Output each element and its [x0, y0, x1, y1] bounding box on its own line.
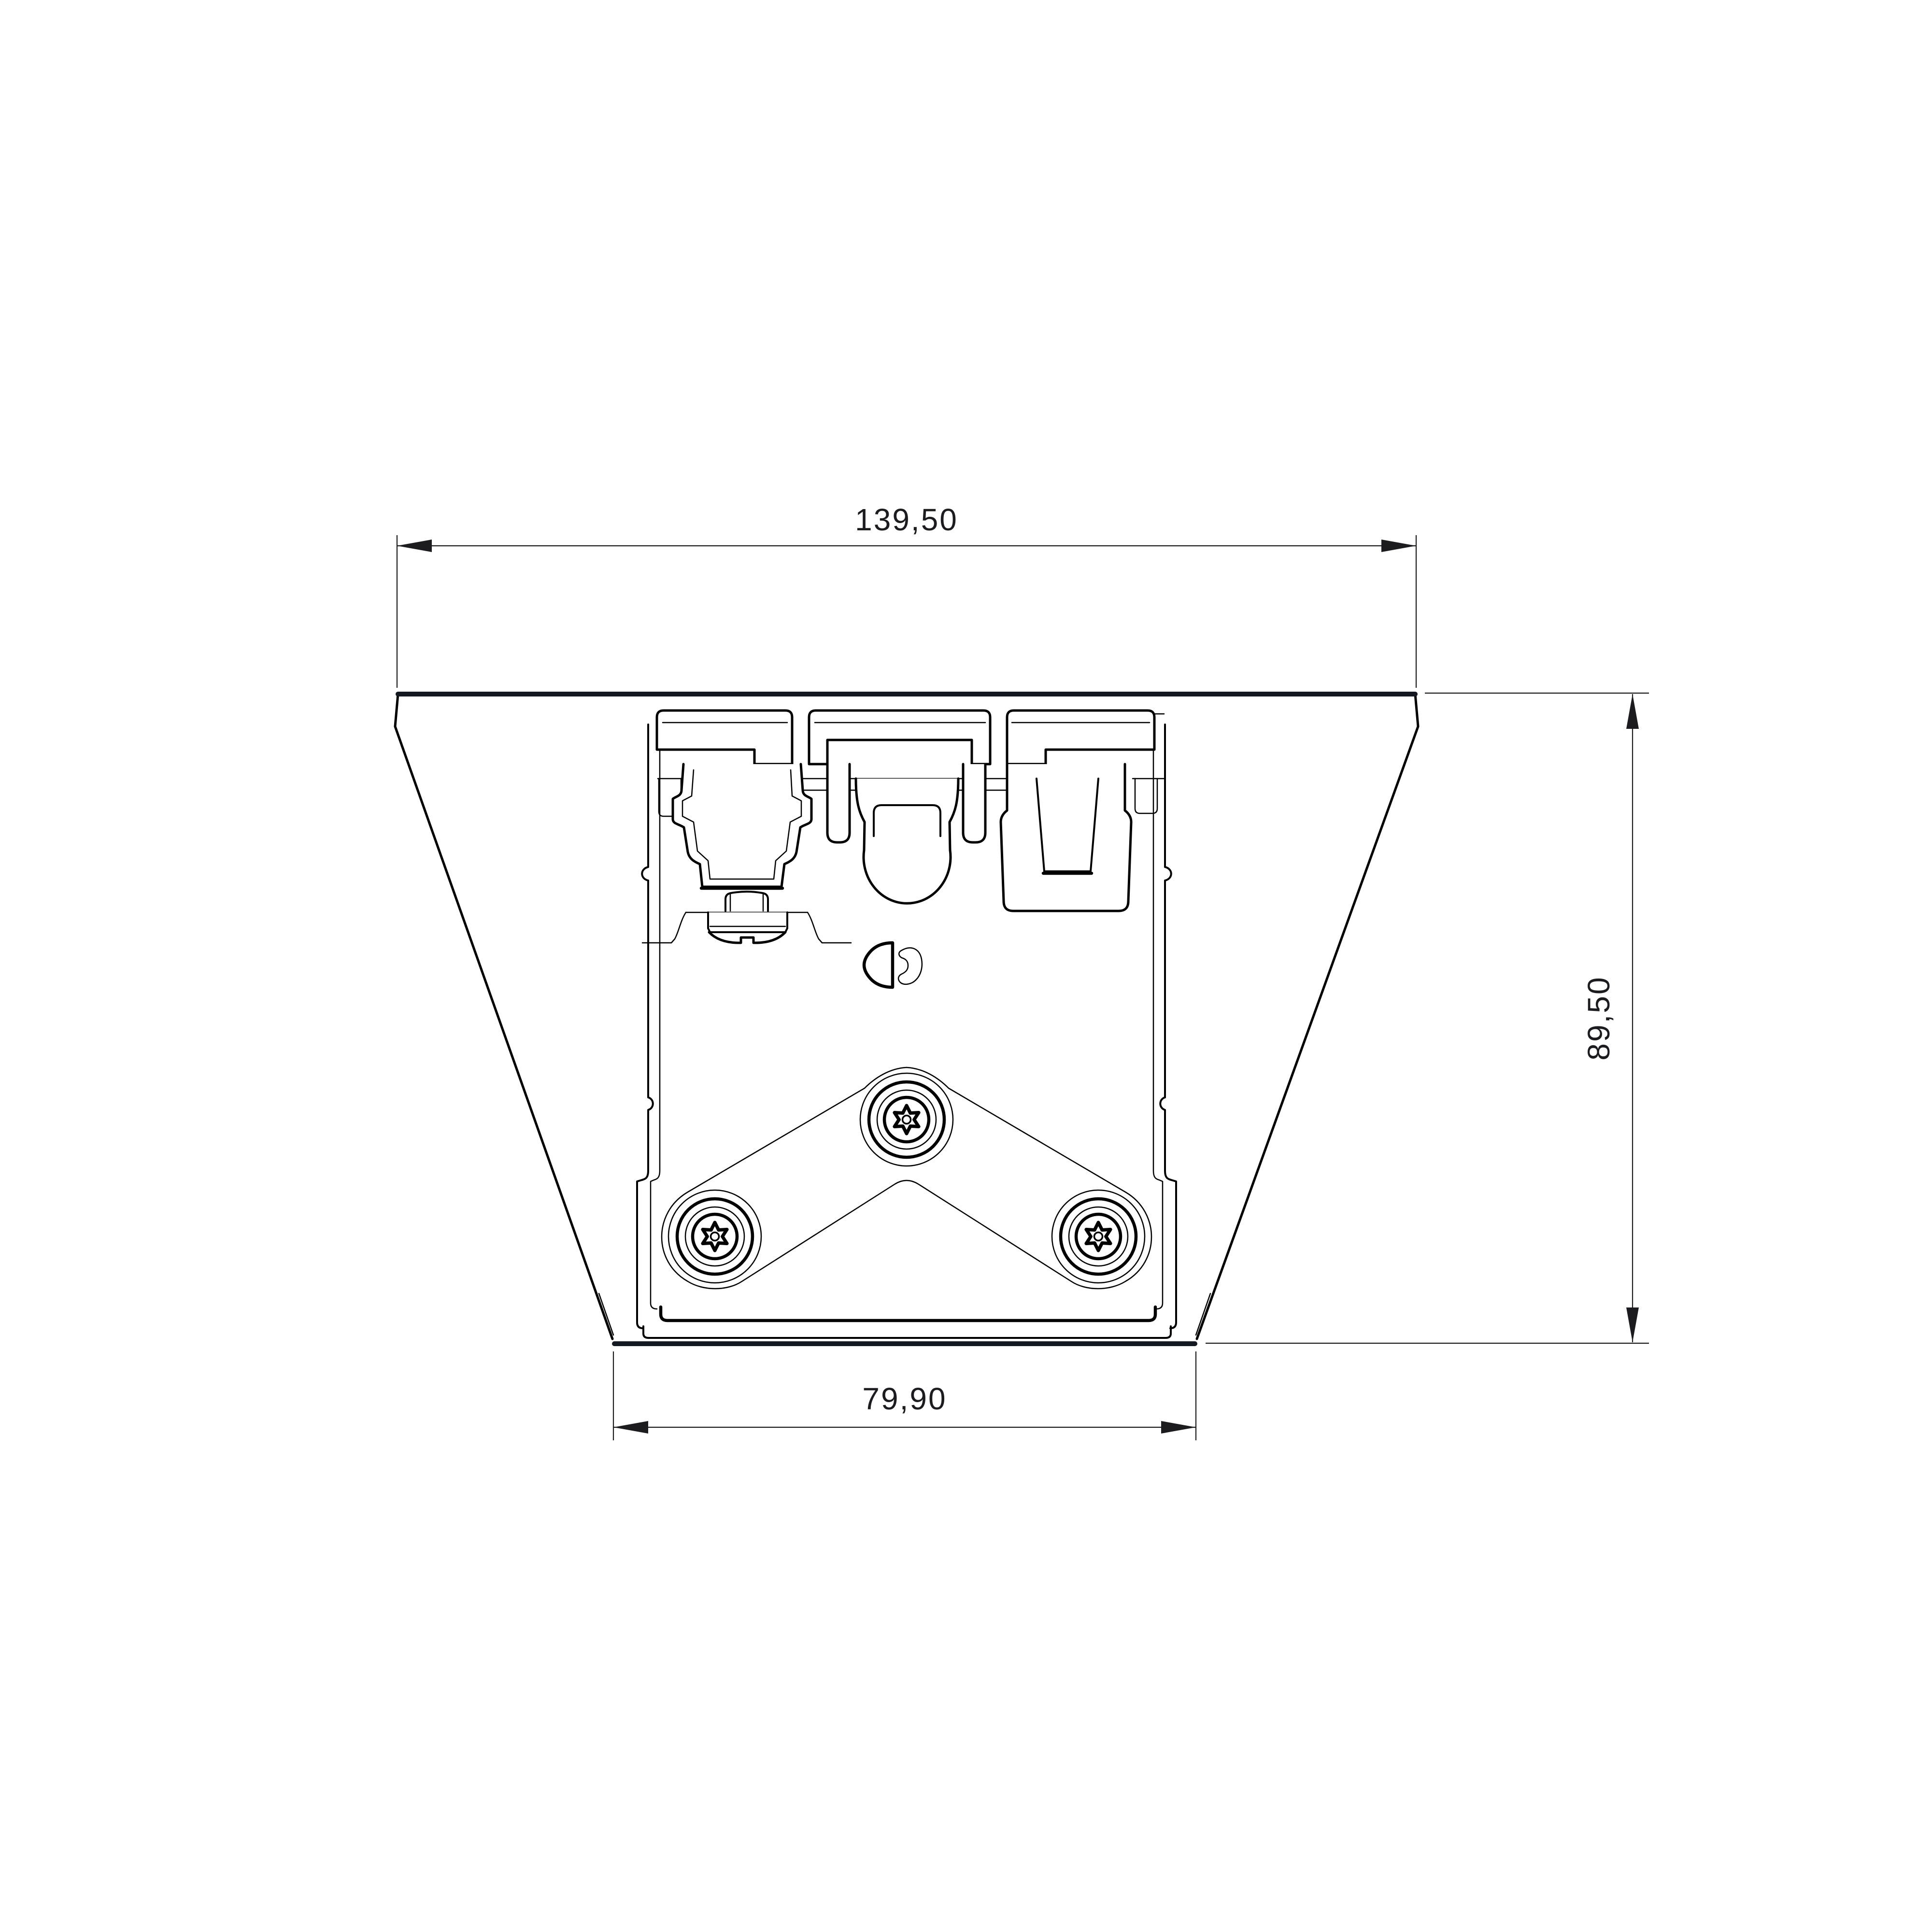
right-slant-edge — [1197, 694, 1418, 1339]
rail-left-cap — [657, 710, 792, 764]
retainer-cap — [725, 892, 768, 911]
drawing-sheet: 139,50 89,50 79,90 — [0, 0, 1932, 1932]
dimension-arrow — [1626, 1307, 1639, 1342]
v-bracket-outline — [662, 1067, 1151, 1289]
rail-prong-left — [827, 764, 850, 842]
keyhole-d-shape — [864, 943, 893, 987]
plate-left-inner-edge — [651, 739, 660, 1309]
left-slant-edge — [395, 694, 612, 1339]
plate-right-inner-edge — [1153, 739, 1163, 1309]
extension-line — [397, 535, 1416, 688]
center-tongue — [856, 779, 958, 903]
dimension-arrow — [397, 540, 432, 552]
rail-profile — [657, 710, 1164, 911]
rail-middle-cap — [809, 710, 990, 764]
rail-prong-right — [963, 764, 985, 842]
dimension-bottom-width: 79,90 — [613, 1351, 1196, 1440]
v-bracket — [662, 1067, 1151, 1289]
retainer-dome — [709, 932, 785, 943]
keyhole-slot — [864, 943, 922, 987]
retainer-screw-side-view — [642, 892, 851, 943]
rail-right-cap — [1007, 710, 1154, 764]
dimension-label-height: 89,50 — [1581, 976, 1616, 1060]
left-wall-inner-line — [599, 1293, 613, 1335]
drawing-canvas: 139,50 89,50 79,90 — [0, 0, 1932, 1932]
dimension-arrow — [1381, 540, 1416, 552]
right-pocket-cup — [1001, 764, 1131, 911]
center-tongue-head — [874, 805, 940, 836]
keyhole-hook — [898, 948, 922, 984]
dimension-arrow — [1161, 1421, 1196, 1434]
bottom-strip-edge — [643, 1326, 1171, 1338]
dimension-arrow — [1626, 694, 1639, 729]
retainer-side-curl-right — [808, 912, 851, 943]
plate-bottom-edge — [661, 1307, 1155, 1321]
dimension-arrow — [613, 1421, 648, 1434]
right-wall-inner-line — [1196, 1293, 1210, 1335]
dimension-top-width: 139,50 — [397, 502, 1416, 688]
dimension-label-bottom: 79,90 — [862, 1381, 947, 1416]
dimension-label-top: 139,50 — [855, 502, 958, 537]
dimension-height: 89,50 — [1206, 693, 1649, 1343]
retainer-flange — [708, 912, 787, 932]
